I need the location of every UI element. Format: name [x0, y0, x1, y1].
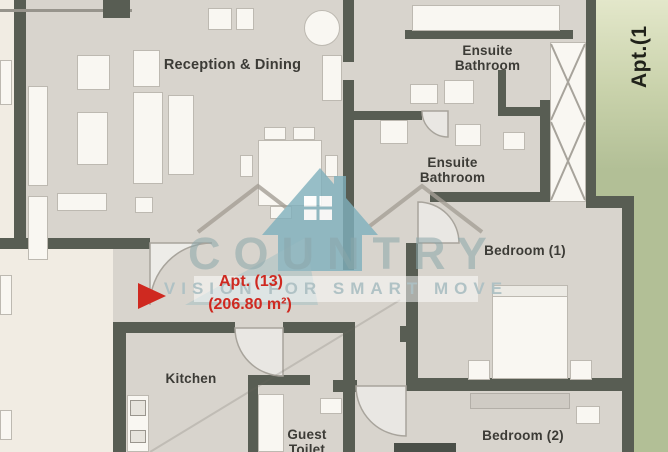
side-apartment-label: Apt.(1 [628, 2, 662, 88]
apartment-area-label: (206.80 m²) [185, 296, 315, 314]
door-swing-arc [356, 386, 406, 436]
plan-overlay [0, 0, 668, 452]
door-swing-arc [235, 328, 283, 376]
room-label-ensuite-bathroom-2: Ensuite Bathroom [405, 156, 500, 185]
room-label-guest-toilet: Guest Toilet [278, 428, 336, 452]
room-label-bedroom-2: Bedroom (2) [468, 429, 578, 444]
room-label-kitchen: Kitchen [160, 372, 222, 387]
room-label-ensuite-bathroom-1: Ensuite Bathroom [440, 44, 535, 73]
room-label-reception: Reception & Dining [150, 58, 315, 74]
floorplan: COUNTRY VISION FOR SMART MOVE Reception … [0, 0, 668, 452]
wardrobe-x-icon [551, 44, 585, 200]
entrance-arrow-icon [138, 283, 166, 309]
apartment-number-label: Apt. (13) [192, 273, 310, 291]
room-label-bedroom-1: Bedroom (1) [470, 244, 580, 259]
door-swing-arc [422, 111, 448, 137]
